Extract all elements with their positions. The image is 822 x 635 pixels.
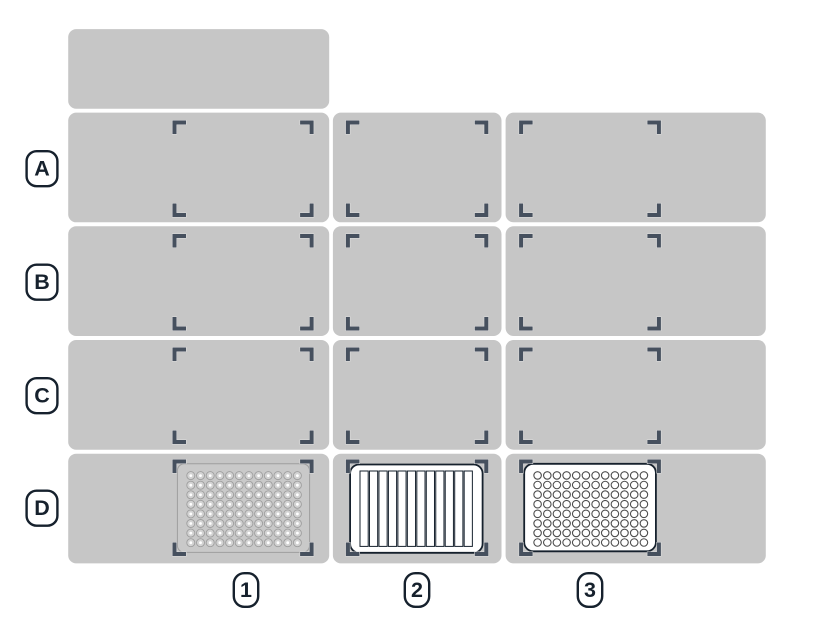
- svg-text:B: B: [34, 270, 50, 294]
- svg-text:3: 3: [584, 578, 596, 602]
- svg-text:D: D: [34, 496, 50, 520]
- svg-text:2: 2: [411, 578, 423, 602]
- svg-text:1: 1: [240, 578, 252, 602]
- svg-text:A: A: [34, 157, 50, 181]
- svg-text:C: C: [34, 384, 50, 408]
